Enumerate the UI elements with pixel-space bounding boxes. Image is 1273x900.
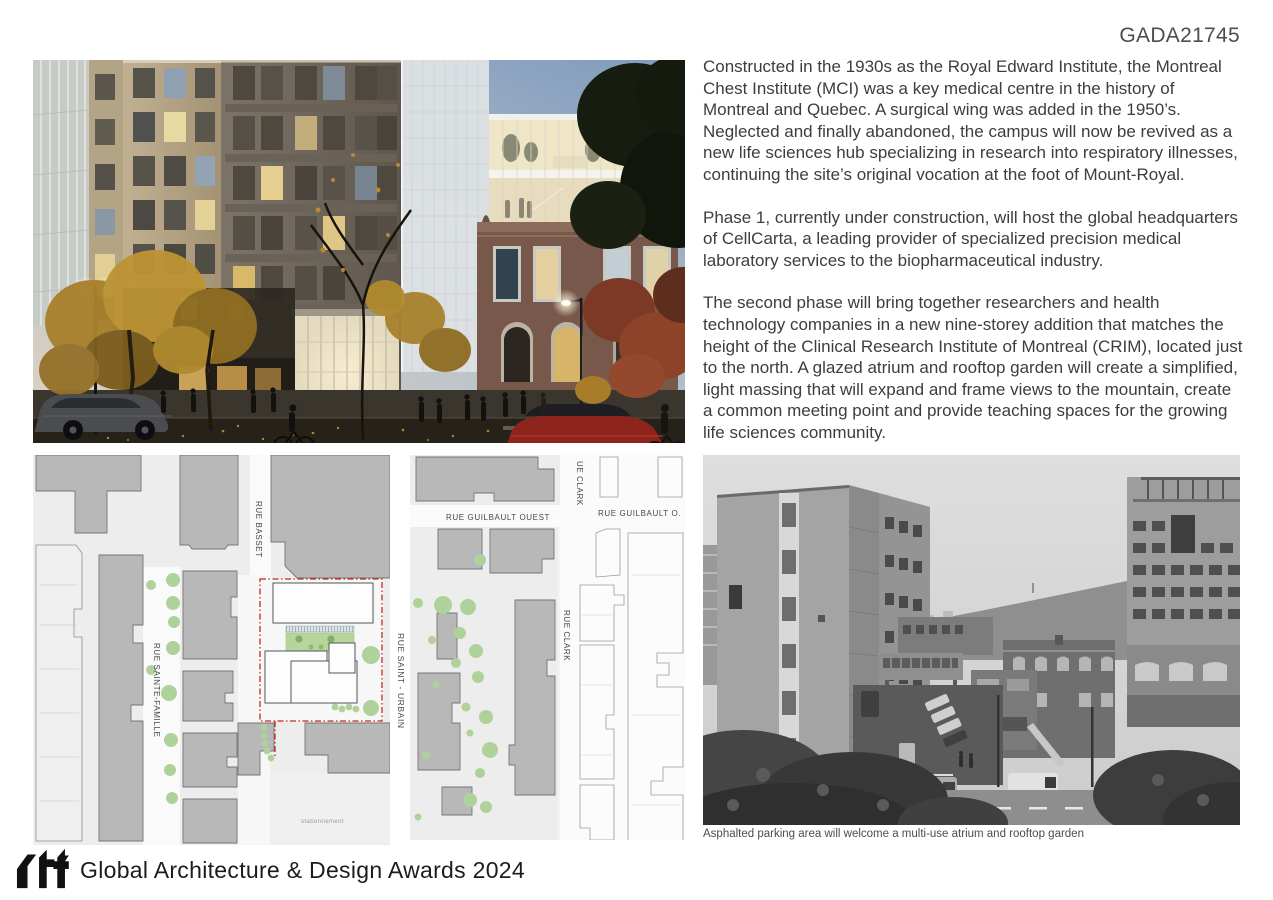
- description-paragraph-2: Phase 1, currently under construction, w…: [703, 207, 1243, 272]
- street-label-rue-basset: RUE BASSET: [254, 501, 263, 558]
- award-title: Global Architecture & Design Awards 2024: [80, 857, 525, 884]
- area-label-stationnement: stationnement: [301, 819, 344, 825]
- street-label-rue-saint-urbain: RUE SAINT - URBAIN: [390, 633, 406, 733]
- site-plan-right: RUE GUILBAULT OUEST RUE GUILBAULT O. UE …: [410, 455, 685, 840]
- submission-code: GADA21745: [1119, 24, 1240, 48]
- site-plan-left: RUE BASSET RUE SAINTE-FAMILLE stationnem…: [33, 455, 390, 845]
- project-description: Constructed in the 1930s as the Royal Ed…: [703, 56, 1243, 465]
- street-label-guilbault-o: RUE GUILBAULT O.: [598, 509, 681, 518]
- crim-building: [1127, 477, 1240, 727]
- main-rendering-image: [33, 60, 685, 443]
- photo-caption: Asphalted parking area will welcome a mu…: [703, 828, 1240, 840]
- description-paragraph-1: Constructed in the 1930s as the Royal Ed…: [703, 56, 1243, 186]
- street-label-rue-sainte-famille: RUE SAINTE-FAMILLE: [152, 643, 161, 737]
- historic-photo: [703, 455, 1240, 825]
- street-label-clark: RUE CLARK: [562, 610, 571, 661]
- footer: Global Architecture & Design Awards 2024: [10, 842, 525, 894]
- street-label-clark-top: UE CLARK: [575, 461, 584, 506]
- description-paragraph-3: The second phase will bring together res…: [703, 292, 1243, 443]
- plan-left-outlined-buildings: [36, 545, 82, 841]
- street-label-guilbault-ouest: RUE GUILBAULT OUEST: [446, 513, 550, 522]
- rtf-logo: [10, 844, 70, 892]
